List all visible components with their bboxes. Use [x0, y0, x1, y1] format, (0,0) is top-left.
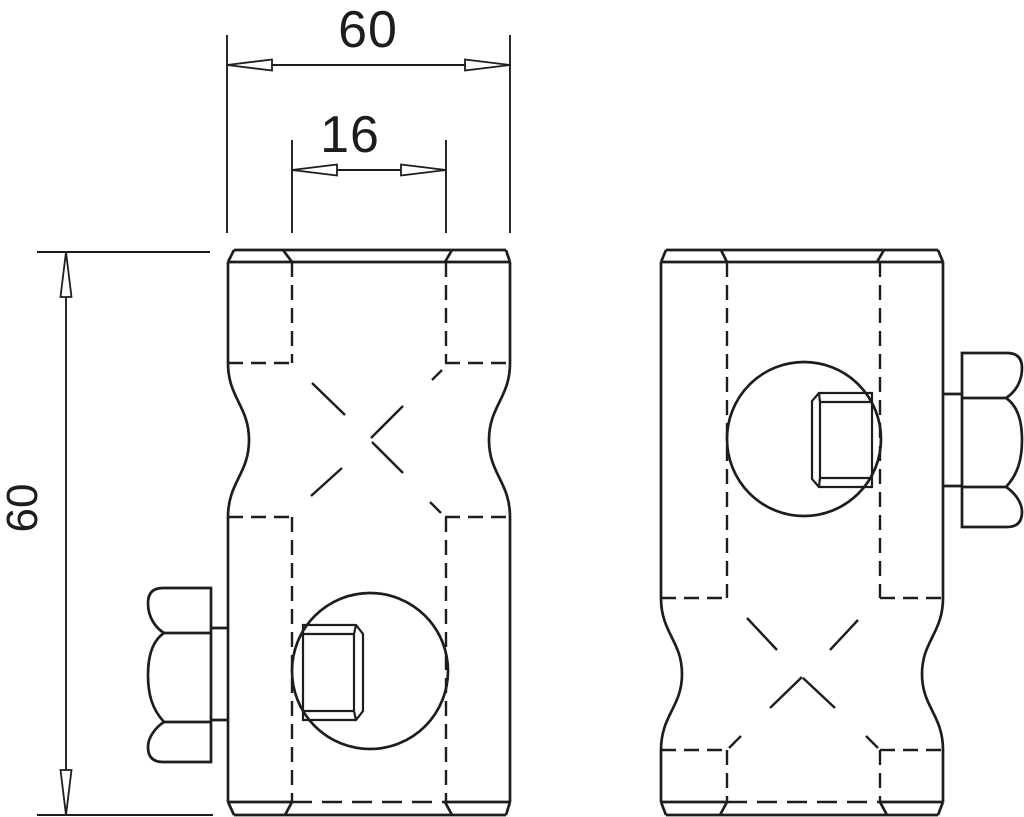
ball-circle	[727, 362, 881, 516]
dimension-overall-height: 60	[0, 252, 213, 815]
side-view	[661, 250, 1022, 815]
dim-label-overall-height: 60	[0, 484, 47, 533]
technical-drawing-canvas: 60 16 60	[0, 0, 1024, 817]
saddle-center-mark	[729, 618, 878, 748]
arrowhead-top-icon	[61, 252, 72, 297]
dim-label-overall-width: 60	[338, 1, 398, 59]
dim-label-bore-width: 16	[320, 106, 380, 164]
hidden-bore-lines	[228, 262, 510, 802]
hex-bolt-head	[148, 588, 228, 762]
arrowhead-left-icon	[227, 60, 272, 71]
tube-clamp-drawing: 60 16 60	[0, 0, 1024, 817]
hex-head-outline	[148, 588, 211, 762]
arrowhead-right-icon	[465, 60, 510, 71]
body-outline	[661, 262, 943, 802]
top-chamfer-band	[661, 250, 943, 262]
body-outline	[228, 262, 510, 802]
arrowhead-bottom-icon	[61, 770, 72, 815]
hidden-bore-lines	[661, 262, 943, 802]
bottom-chamfer-band	[661, 802, 943, 815]
clamp-ball	[727, 362, 881, 516]
bottom-chamfer-band	[228, 802, 510, 815]
saddle-center-mark	[311, 370, 442, 513]
arrowhead-left-icon	[292, 165, 337, 176]
ball-circle	[292, 593, 448, 749]
hex-head-outline	[962, 353, 1022, 527]
hex-bolt-head	[943, 353, 1022, 527]
square-socket	[303, 625, 363, 720]
arrowhead-right-icon	[401, 165, 446, 176]
front-view	[148, 250, 510, 815]
square-socket	[812, 393, 872, 487]
clamp-ball	[292, 593, 448, 749]
top-chamfer-band	[228, 250, 510, 262]
dimension-bore-width: 16	[292, 106, 446, 233]
